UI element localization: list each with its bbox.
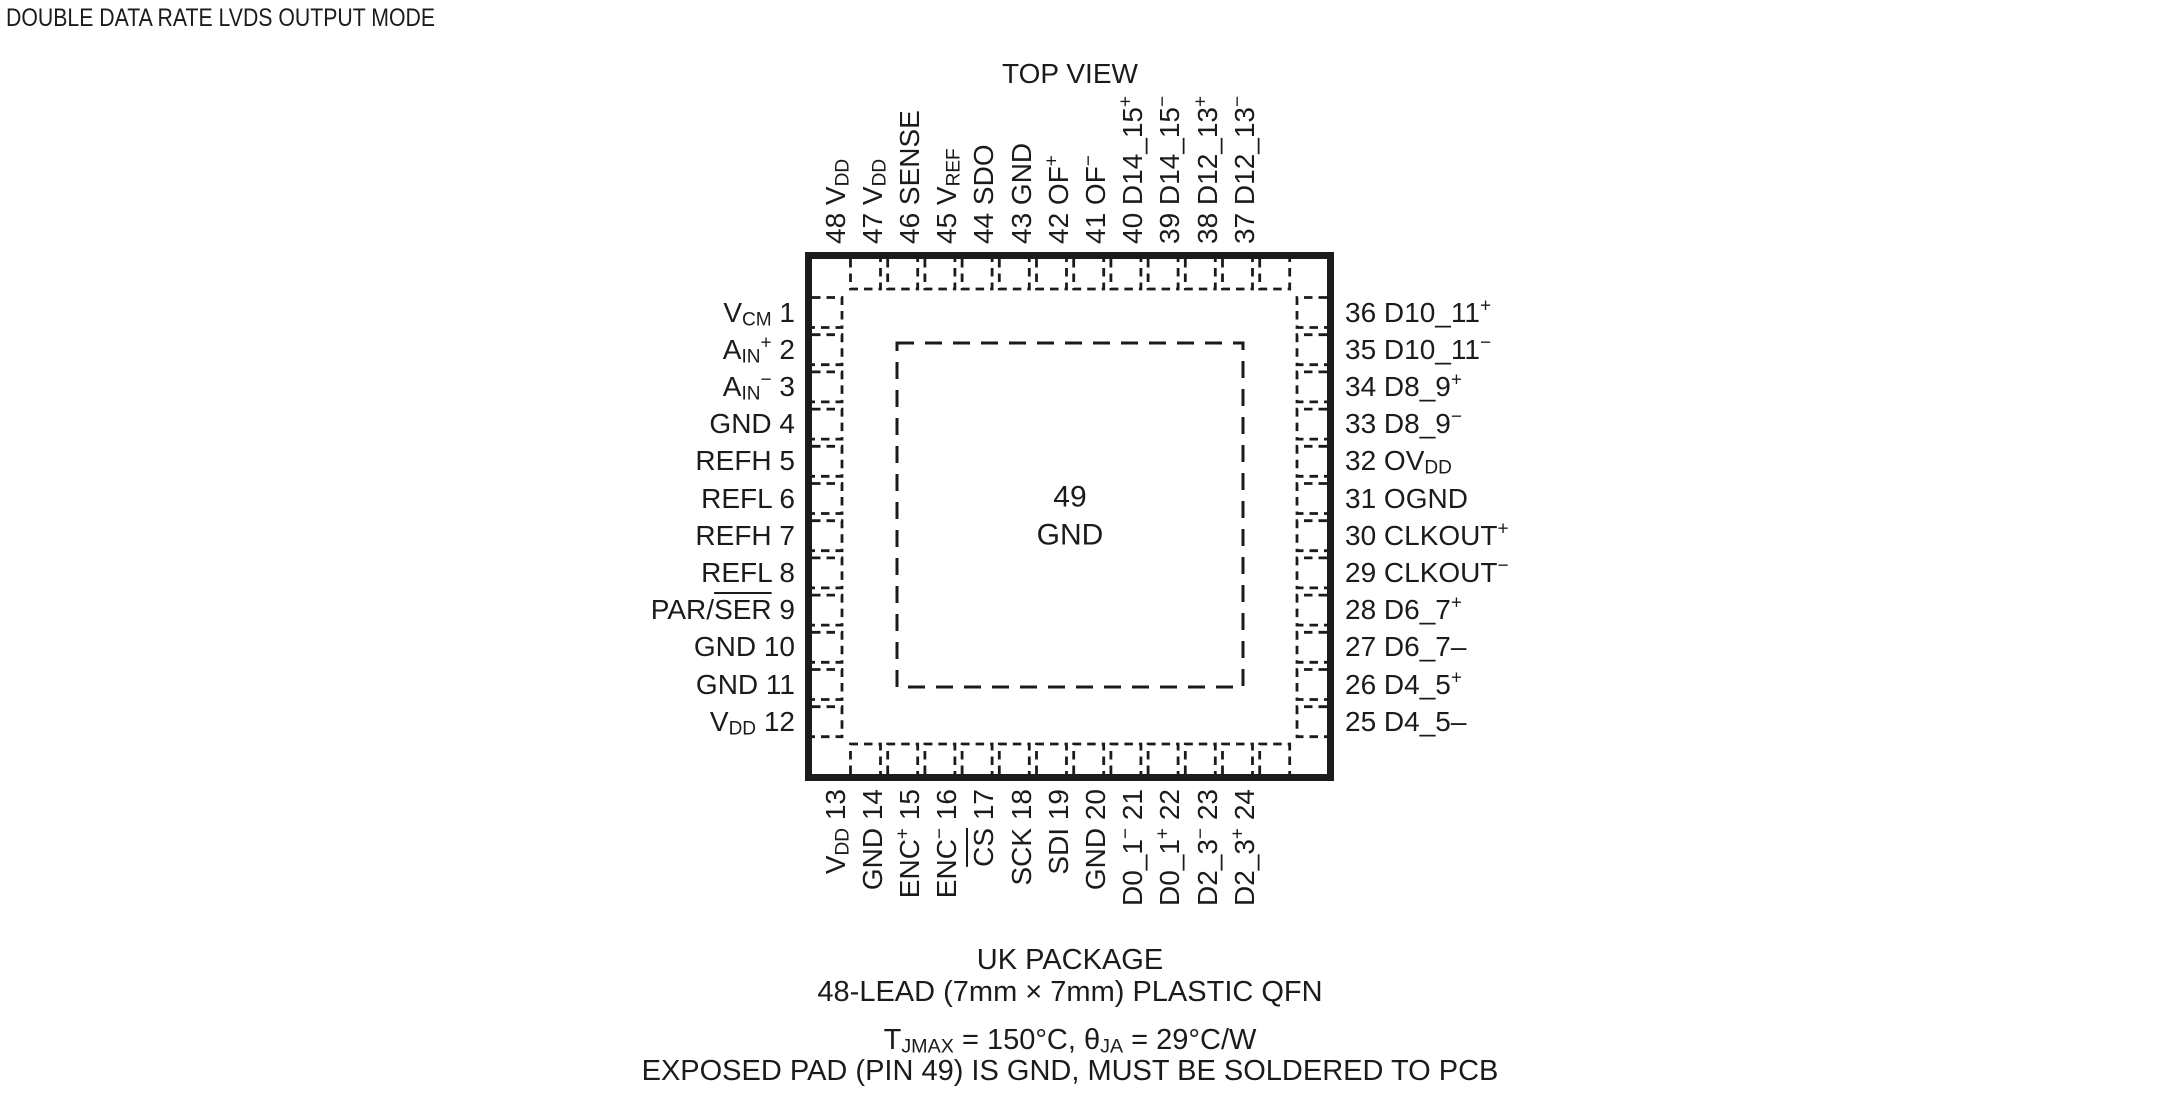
exposed-pad-note: EXPOSED PAD (PIN 49) IS GND, MUST BE SOL… (642, 1056, 1499, 1088)
pin-11-pad (812, 670, 842, 700)
package-description: 48-LEAD (7mm × 7mm) PLASTIC QFN (817, 977, 1322, 1009)
pin-4-pad (812, 409, 842, 439)
pin-46-label: 46 SENSE (895, 44, 925, 244)
pin-12-pad (812, 707, 842, 737)
pin-37-pad (1260, 259, 1290, 289)
pin-28-label: 28 D6_7+ (1345, 595, 1462, 625)
pin-28-pad (1297, 595, 1327, 625)
pin-48-pad (851, 259, 881, 289)
pin-35-pad (1297, 335, 1327, 365)
pin-38-label: 38 D12_13+ (1193, 44, 1223, 244)
pin-42-pad (1074, 259, 1104, 289)
pin-13-label: VDD 13 (821, 789, 851, 989)
pin-4-label: GND 4 (709, 409, 795, 439)
pin-44-label: 44 SDO (969, 44, 999, 244)
qfn-pinout-diagram: DOUBLE DATA RATE LVDS OUTPUT MODE TOP VI… (0, 0, 2157, 1100)
pin-15-pad (925, 744, 955, 774)
pin-45-label: 45 VREF (932, 44, 962, 244)
pin-17-pad (999, 744, 1029, 774)
pin-48-label: 48 VDD (821, 44, 851, 244)
pin-30-label: 30 CLKOUT+ (1345, 521, 1509, 551)
pin-43-label: 43 GND (1007, 44, 1037, 244)
pin-10-pad (812, 632, 842, 662)
pin-24-pad (1260, 744, 1290, 774)
pin-3-pad (812, 372, 842, 402)
pin-23-pad (1223, 744, 1253, 774)
pin-33-label: 33 D8_9− (1345, 409, 1462, 439)
pin-7-pad (812, 521, 842, 551)
pin-31-pad (1297, 484, 1327, 514)
pin-15-label: ENC+ 15 (895, 789, 925, 989)
pin-11-label: GND 11 (696, 670, 795, 700)
pin-39-label: 39 D14_15− (1155, 44, 1185, 244)
pin-10-label: GND 10 (694, 632, 795, 662)
pin-18-pad (1037, 744, 1067, 774)
pin-9-pad (812, 595, 842, 625)
pin-41-label: 41 OF− (1081, 44, 1111, 244)
pin-39-pad (1185, 259, 1215, 289)
pin-35-label: 35 D10_11− (1345, 335, 1491, 365)
pin-16-pad (962, 744, 992, 774)
pin-16-label: ENC− 16 (932, 789, 962, 989)
pin-2-label: AIN+ 2 (723, 335, 795, 365)
pin-24-label: D2_3+ 24 (1230, 789, 1260, 989)
pin-26-label: 26 D4_5+ (1345, 670, 1462, 700)
pin-25-pad (1297, 707, 1327, 737)
pin-45-pad (962, 259, 992, 289)
pin-3-label: AIN− 3 (723, 372, 795, 402)
pin-8-label: REFL 8 (701, 558, 795, 588)
pin-32-label: 32 OVDD (1345, 446, 1452, 476)
pin-40-pad (1148, 259, 1178, 289)
pin-6-pad (812, 484, 842, 514)
pin-26-pad (1297, 670, 1327, 700)
pin-7-label: REFH 7 (695, 521, 795, 551)
pin-14-pad (888, 744, 918, 774)
pin-31-label: 31 OGND (1345, 484, 1468, 514)
pin-34-label: 34 D8_9+ (1345, 372, 1462, 402)
pin-6-label: REFL 6 (701, 484, 795, 514)
exposed-pad-name: GND (1037, 516, 1104, 554)
pin-33-pad (1297, 409, 1327, 439)
pin-29-label: 29 CLKOUT− (1345, 558, 1509, 588)
pin-1-pad (812, 298, 842, 328)
pin-1-label: VCM 1 (723, 298, 795, 328)
pin-27-pad (1297, 632, 1327, 662)
pin-36-pad (1297, 298, 1327, 328)
pin-21-pad (1148, 744, 1178, 774)
pin-14-label: GND 14 (858, 789, 888, 989)
pin-47-label: 47 VDD (858, 44, 888, 244)
pin-5-pad (812, 446, 842, 476)
pin-37-label: 37 D12_13− (1230, 44, 1260, 244)
pin-32-pad (1297, 446, 1327, 476)
package-name: UK PACKAGE (977, 945, 1163, 977)
pin-5-label: REFH 5 (695, 446, 795, 476)
pin-46-pad (925, 259, 955, 289)
pin-38-pad (1223, 259, 1253, 289)
pin-36-label: 36 D10_11+ (1345, 298, 1491, 328)
pin-44-pad (999, 259, 1029, 289)
pin-43-pad (1037, 259, 1067, 289)
pin-27-label: 27 D6_7– (1345, 632, 1466, 662)
pin-34-pad (1297, 372, 1327, 402)
pin-23-label: D2_3− 23 (1193, 789, 1223, 989)
exposed-pad-label: 49 GND (1037, 479, 1104, 554)
pin-30-pad (1297, 521, 1327, 551)
pin-8-pad (812, 558, 842, 588)
pin-40-label: 40 D14_15+ (1118, 44, 1148, 244)
pin-2-pad (812, 335, 842, 365)
pin-42-label: 42 OF+ (1044, 44, 1074, 244)
pin-29-pad (1297, 558, 1327, 588)
diagram-title: DOUBLE DATA RATE LVDS OUTPUT MODE (6, 4, 435, 33)
pin-12-label: VDD 12 (710, 707, 795, 737)
thermal-note: TJMAX = 150°C, θJA = 29°C/W (884, 1025, 1257, 1057)
pin-41-pad (1111, 259, 1141, 289)
exposed-pad-number: 49 (1037, 479, 1104, 517)
pin-20-pad (1111, 744, 1141, 774)
pin-9-label: PAR/SER 9 (651, 595, 795, 625)
pin-22-pad (1185, 744, 1215, 774)
pin-47-pad (888, 259, 918, 289)
pin-19-pad (1074, 744, 1104, 774)
pin-13-pad (851, 744, 881, 774)
pin-25-label: 25 D4_5– (1345, 707, 1466, 737)
